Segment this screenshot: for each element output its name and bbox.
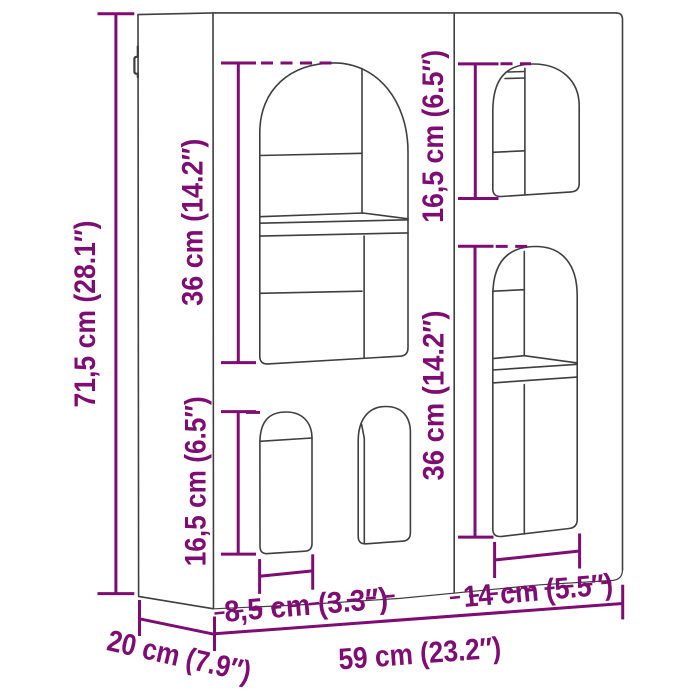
svg-text:36 cm (14.2″): 36 cm (14.2″) <box>418 311 451 481</box>
svg-text:71,5 cm (28.1″): 71,5 cm (28.1″) <box>69 221 102 408</box>
svg-text:36 cm (14.2″): 36 cm (14.2″) <box>177 139 210 306</box>
svg-text:16,5 cm (6.5″): 16,5 cm (6.5″) <box>180 396 213 566</box>
svg-text:16,5 cm (6.5″): 16,5 cm (6.5″) <box>417 50 450 223</box>
